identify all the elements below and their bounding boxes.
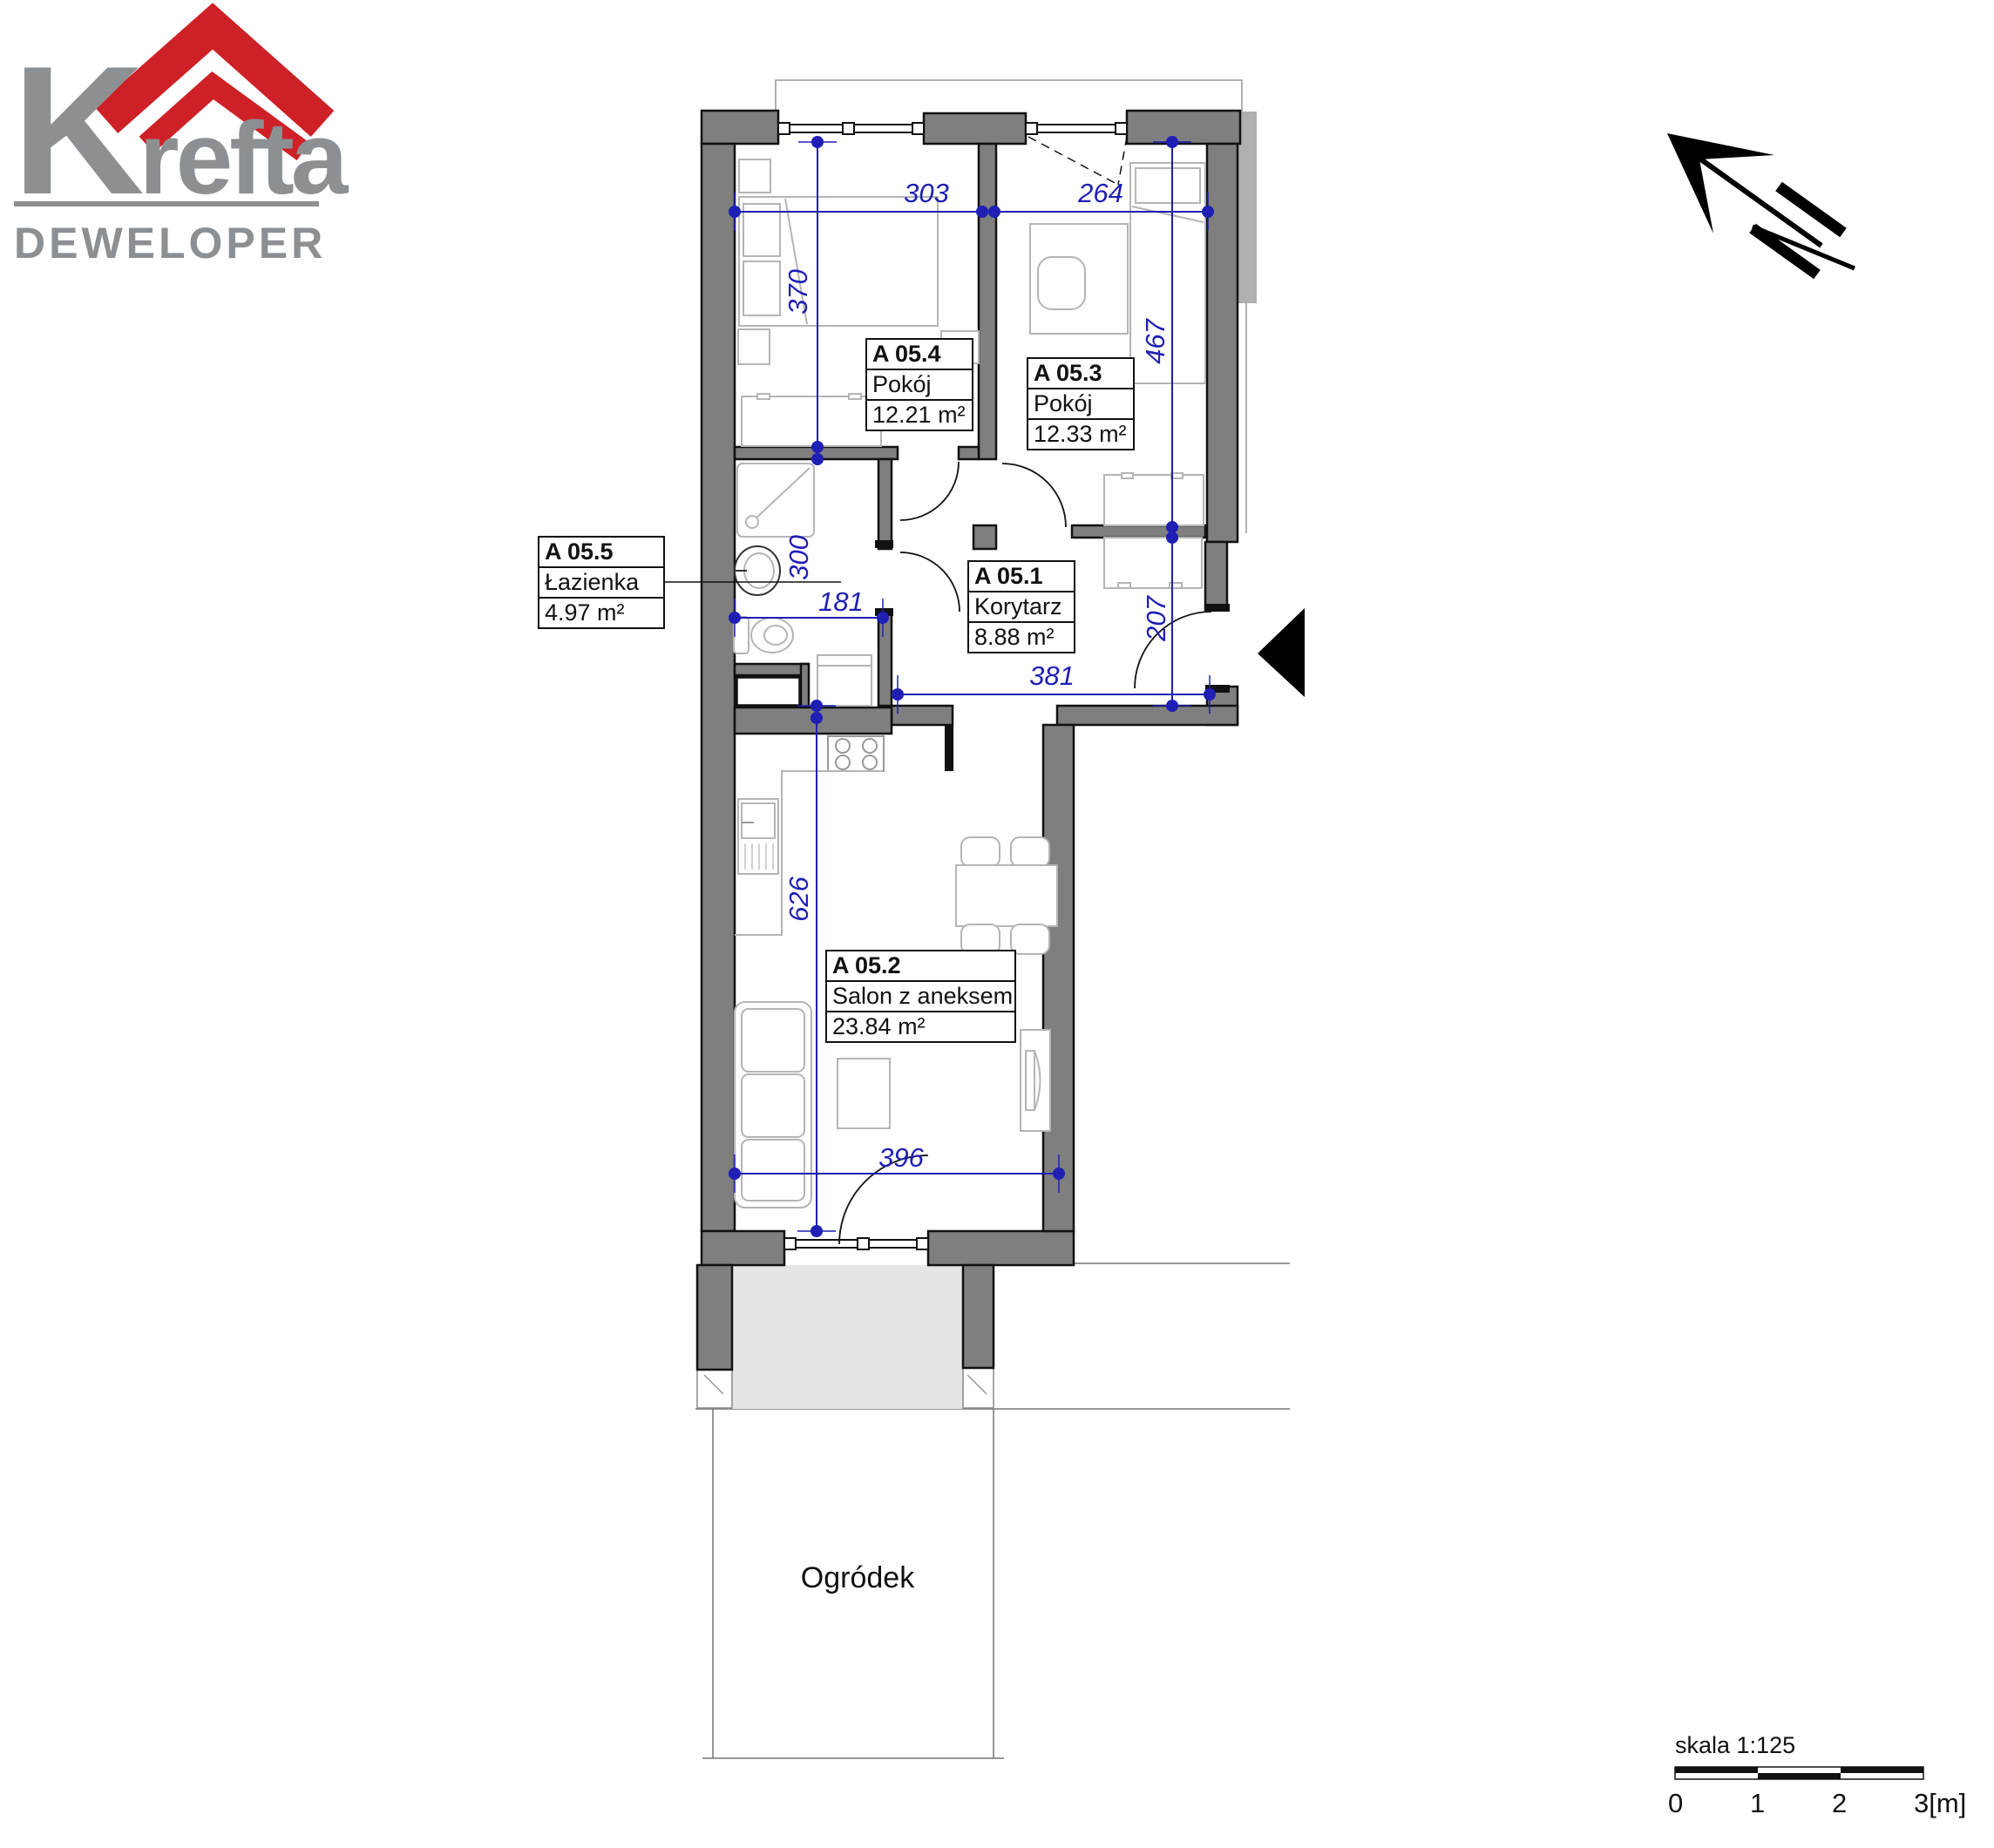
scale-seg — [1758, 1767, 1841, 1773]
wall-right-upper — [1207, 144, 1238, 542]
wall-bedroom-divider — [979, 144, 996, 459]
pillow — [1136, 168, 1200, 203]
wall-bath-east-lower — [878, 610, 892, 706]
wardrobe-handle — [757, 394, 770, 399]
room-area: 4.97 m² — [539, 599, 663, 627]
scale-seg — [1675, 1767, 1758, 1773]
tv-screen — [1026, 1051, 1034, 1110]
entry-jamb-cap-top — [1205, 604, 1230, 612]
wall-south-left-block — [702, 1231, 784, 1265]
dim-207: 207 — [1142, 575, 1171, 662]
wardrobe-handle — [849, 394, 861, 399]
dim-467: 467 — [1141, 298, 1170, 385]
roof-eave-line — [776, 80, 1242, 112]
room-id: A 05.5 — [539, 538, 663, 568]
wall-top-pier — [924, 113, 1026, 144]
dim-303: 303 — [883, 179, 970, 208]
room-id: A 05.2 — [827, 951, 1014, 982]
room-name: Pokój — [1028, 389, 1133, 420]
wall-top-left-block — [702, 111, 778, 144]
desk-chair — [1038, 257, 1085, 309]
wall-bedroom3-door-jamb — [973, 525, 996, 549]
wall-right-entry-jamb — [1205, 542, 1227, 610]
furniture-bedroom3 — [1030, 163, 1205, 525]
door-arc-bedroom4 — [900, 462, 959, 520]
scale-tick-1: 1 — [1750, 1788, 1765, 1818]
wall-corridor-south-right — [1057, 706, 1238, 725]
scale-seg — [1841, 1773, 1923, 1779]
wall-corridor-south-left — [892, 706, 953, 725]
scale-tick-2: 2 — [1832, 1788, 1847, 1818]
wardrobe — [1104, 475, 1204, 525]
scale-seg — [1841, 1767, 1923, 1773]
wall-closet-divider — [801, 664, 809, 707]
kitchen-screen-stub — [945, 725, 953, 771]
cabinet-handle — [1118, 583, 1130, 588]
washing-machine — [817, 655, 872, 706]
wall-south-right-block — [928, 1231, 1074, 1265]
terrace-slab — [732, 1265, 963, 1409]
room-area: 23.84 m² — [827, 1012, 1014, 1041]
dining-chair — [1011, 837, 1049, 867]
entrance-arrow-icon — [1258, 608, 1305, 697]
dim-626: 626 — [784, 856, 814, 943]
north-arrow-head — [1667, 133, 1774, 234]
wardrobe-handle — [1122, 473, 1133, 478]
scale-tick-3: 3[m] — [1914, 1788, 1966, 1818]
toilet-bowl-inner — [764, 626, 787, 645]
room-id: A 05.3 — [1028, 359, 1133, 389]
garden-label: Ogródek — [770, 1561, 945, 1595]
north-letter-stroke — [1779, 186, 1843, 233]
pillow — [743, 261, 780, 315]
floorplan-page: Krefta DEWELOPER skala 1:125 0 1 2 3[m] … — [0, 0, 1994, 1848]
room-label-a05-3: A 05.3 Pokój 12.33 m² — [1027, 357, 1135, 450]
floorplan-drawing: Krefta DEWELOPER skala 1:125 0 1 2 3[m] — [0, 0, 1994, 1848]
dim-370: 370 — [783, 248, 813, 335]
sofa-cushion — [742, 1009, 804, 1072]
wall-bath-east-upper — [878, 459, 892, 549]
door-arc-bedroom3 — [1002, 464, 1066, 527]
kitchen-sink-unit — [738, 799, 778, 874]
nightstand — [739, 159, 770, 193]
wall-left — [702, 144, 735, 1231]
terrace-post-left — [697, 1370, 732, 1408]
logo-subtitle: DEWELOPER — [14, 219, 326, 267]
room-id: A 05.1 — [969, 562, 1074, 592]
logo-brand-rest: refta — [139, 101, 349, 216]
wall-bath-closet-top — [735, 664, 808, 675]
wall-bedroom4-south-piece — [959, 447, 979, 459]
terrace-post-right — [963, 1368, 994, 1408]
wall-terrace-left — [697, 1265, 732, 1370]
wall-bedroom3-south — [1072, 525, 1205, 538]
dining-table — [956, 865, 1057, 926]
dim-181: 181 — [797, 587, 885, 617]
scale-seg — [1758, 1773, 1841, 1779]
sofa-cushion — [742, 1140, 804, 1201]
room-area: 8.88 m² — [969, 623, 1074, 652]
coffee-table — [838, 1059, 890, 1128]
utility-closet — [736, 677, 800, 706]
dim-264: 264 — [1057, 179, 1144, 208]
shower-drain — [746, 516, 758, 528]
dim-381: 381 — [1008, 661, 1095, 691]
room-name: Łazienka — [539, 568, 663, 599]
scale-tick-0: 0 — [1668, 1788, 1683, 1818]
wall-top-right-block — [1127, 111, 1240, 144]
scale-label: skala 1:125 — [1675, 1732, 1795, 1758]
room-area: 12.33 m² — [1028, 420, 1133, 449]
north-arrow-icon — [1667, 133, 1855, 274]
scale-bar: skala 1:125 0 1 2 3[m] — [1668, 1732, 1966, 1818]
terrace — [697, 1265, 994, 1409]
room-name: Salon z aneksem — [827, 982, 1014, 1012]
room-label-a05-2: A 05.2 Salon z aneksem 23.84 m² — [825, 950, 1016, 1043]
room-name: Korytarz — [969, 592, 1074, 623]
room-label-a05-1: A 05.1 Korytarz 8.88 m² — [967, 560, 1075, 653]
washbasin-bowl — [744, 553, 774, 588]
logo: Krefta DEWELOPER — [12, 26, 349, 267]
logo-divider — [14, 201, 319, 206]
room-label-a05-4: A 05.4 Pokój 12.21 m² — [865, 338, 973, 431]
wardrobe — [742, 396, 881, 446]
scale-seg — [1675, 1773, 1758, 1779]
dining-chair — [961, 837, 1000, 867]
dim-396: 396 — [858, 1143, 945, 1173]
sofa-cushion — [742, 1074, 804, 1137]
room-name: Pokój — [867, 370, 972, 401]
door-arc-bathroom — [900, 552, 960, 612]
dining-chair — [1011, 924, 1049, 954]
room-label-a05-5: A 05.5 Łazienka 4.97 m² — [538, 536, 665, 629]
room-area: 12.21 m² — [867, 401, 972, 430]
wall-terrace-right — [963, 1265, 994, 1368]
room-id: A 05.4 — [867, 340, 972, 370]
nightstand — [738, 329, 770, 364]
bath-jamb-cap-top — [875, 540, 893, 548]
